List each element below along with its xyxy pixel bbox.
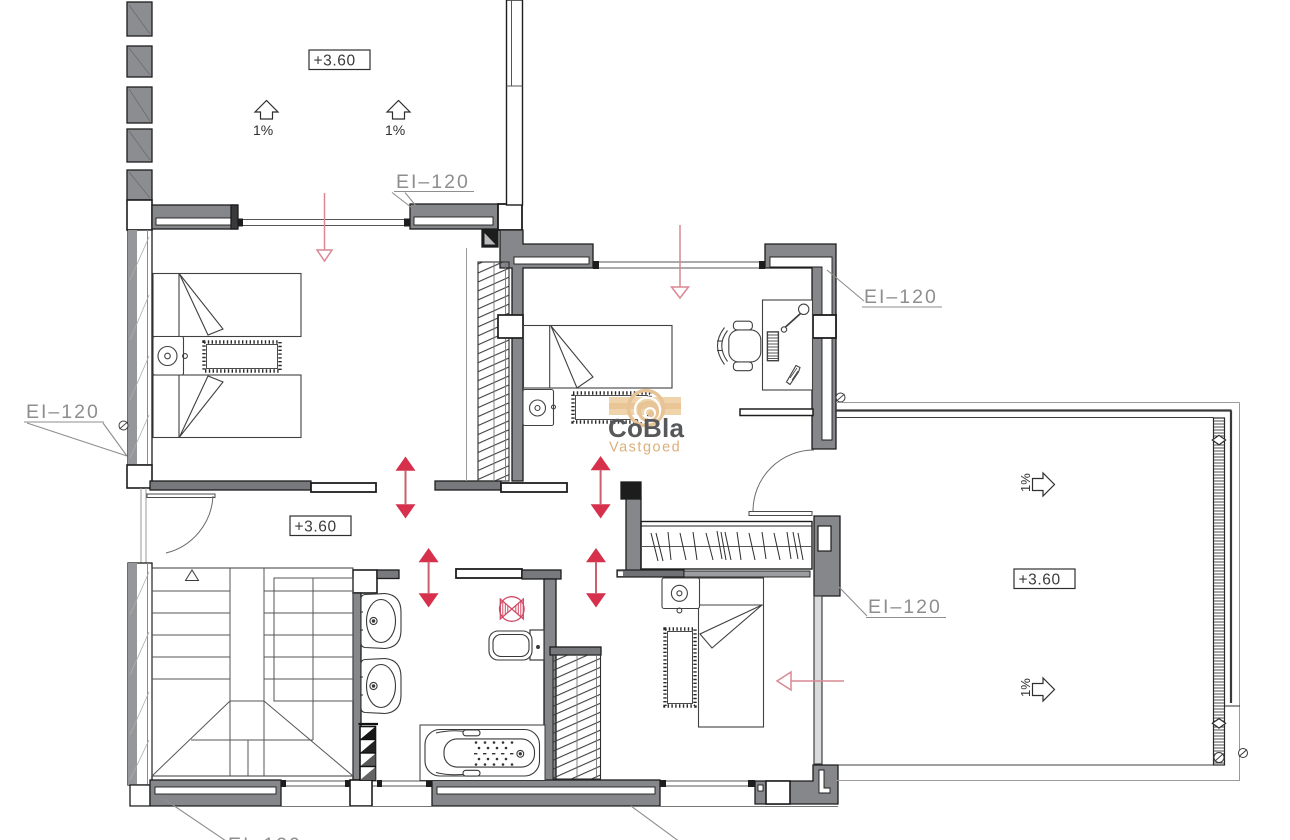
- svg-text:+3.60: +3.60: [1019, 572, 1061, 589]
- svg-text:1%: 1%: [385, 122, 405, 138]
- svg-text:EI–120: EI–120: [864, 286, 938, 308]
- svg-text:1%: 1%: [1018, 678, 1033, 697]
- svg-text:EI–120: EI–120: [396, 171, 470, 193]
- svg-text:EI–120: EI–120: [228, 834, 302, 840]
- svg-text:CoBla: CoBla: [608, 413, 684, 443]
- svg-text:Vastgoed: Vastgoed: [609, 440, 681, 456]
- svg-text:1%: 1%: [1018, 473, 1033, 492]
- svg-text:+3.60: +3.60: [314, 53, 356, 70]
- svg-text:1%: 1%: [253, 122, 273, 138]
- svg-text:EI–120: EI–120: [868, 596, 942, 618]
- svg-text:EI–120: EI–120: [26, 401, 100, 423]
- svg-text:+3.60: +3.60: [295, 519, 337, 536]
